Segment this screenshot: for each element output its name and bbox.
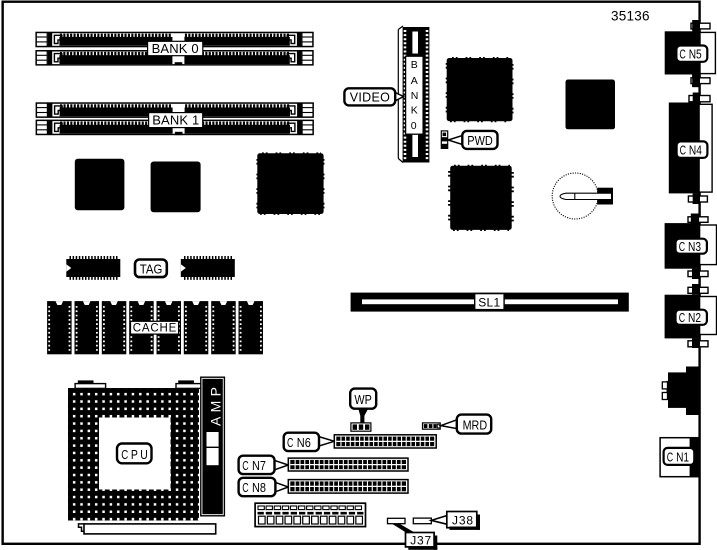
svg-text:CPU: CPU xyxy=(121,447,148,462)
svg-text:CN8: CN8 xyxy=(242,481,266,495)
svg-text:BANK 0: BANK 0 xyxy=(152,41,199,56)
svg-text:CN6: CN6 xyxy=(287,436,311,450)
svg-text:SL1: SL1 xyxy=(478,295,500,309)
svg-text:CN4: CN4 xyxy=(680,144,702,158)
svg-text:CN7: CN7 xyxy=(242,459,266,473)
svg-text:MRD: MRD xyxy=(463,418,488,432)
svg-text:CN2: CN2 xyxy=(679,311,701,325)
svg-text:35136: 35136 xyxy=(611,8,650,23)
svg-text:B: B xyxy=(411,59,418,71)
svg-text:CN1: CN1 xyxy=(667,450,689,464)
svg-text:PWD: PWD xyxy=(467,134,493,148)
svg-text:VIDEO: VIDEO xyxy=(350,91,390,105)
svg-text:K: K xyxy=(411,104,418,116)
svg-text:N: N xyxy=(411,90,419,102)
svg-text:BANK 1: BANK 1 xyxy=(152,112,199,127)
svg-text:AMP: AMP xyxy=(208,387,224,426)
svg-text:CN3: CN3 xyxy=(679,240,701,254)
svg-text:CN5: CN5 xyxy=(679,47,701,61)
svg-text:TAG: TAG xyxy=(140,263,163,277)
svg-text:J37: J37 xyxy=(410,533,431,547)
svg-text:J38: J38 xyxy=(452,513,473,527)
svg-text:A: A xyxy=(411,75,418,87)
svg-text:CACHE: CACHE xyxy=(133,323,177,335)
svg-text:0: 0 xyxy=(411,120,417,132)
svg-text:WP: WP xyxy=(354,393,372,407)
